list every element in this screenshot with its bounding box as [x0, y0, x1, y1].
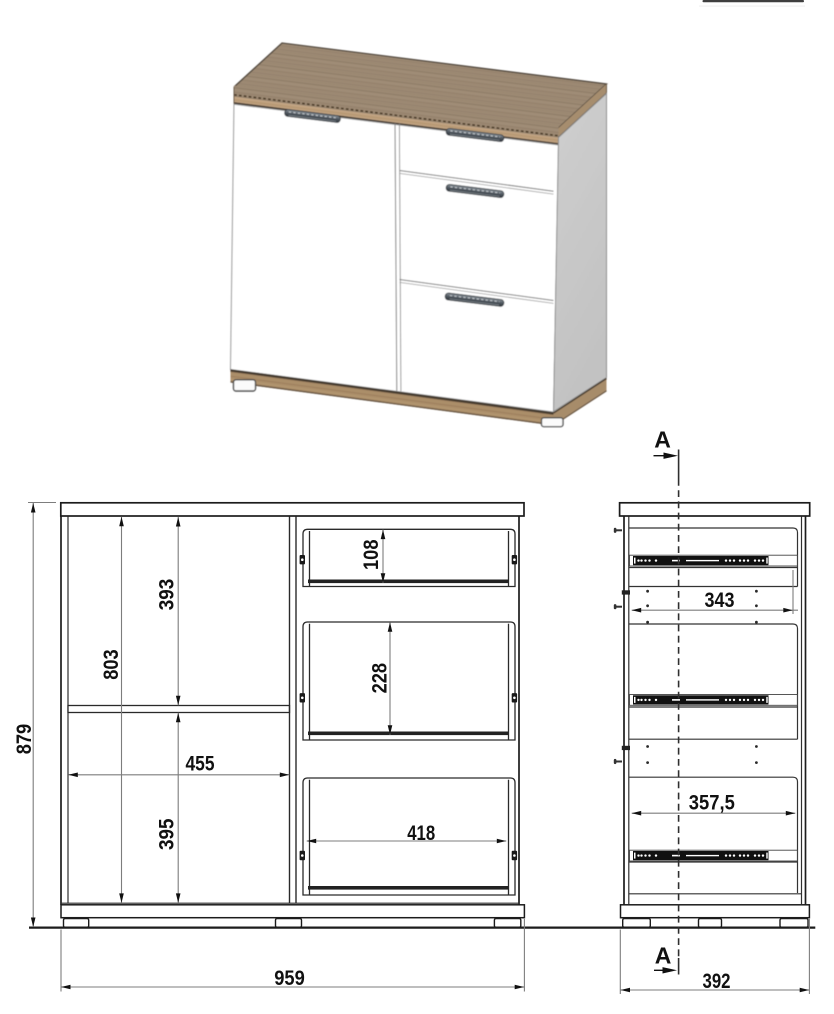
svg-text:803: 803: [99, 649, 123, 680]
svg-text:357,5: 357,5: [689, 791, 735, 815]
svg-text:392: 392: [703, 969, 731, 993]
svg-text:A: A: [654, 427, 671, 453]
svg-text:108: 108: [359, 539, 383, 570]
svg-text:343: 343: [705, 588, 735, 612]
svg-text:395: 395: [155, 818, 179, 850]
svg-text:879: 879: [12, 724, 36, 755]
svg-text:959: 959: [274, 966, 305, 990]
svg-text:228: 228: [368, 663, 392, 694]
svg-text:A: A: [655, 943, 672, 969]
svg-text:393: 393: [155, 579, 179, 611]
svg-text:418: 418: [407, 821, 435, 845]
svg-text:455: 455: [186, 752, 215, 776]
